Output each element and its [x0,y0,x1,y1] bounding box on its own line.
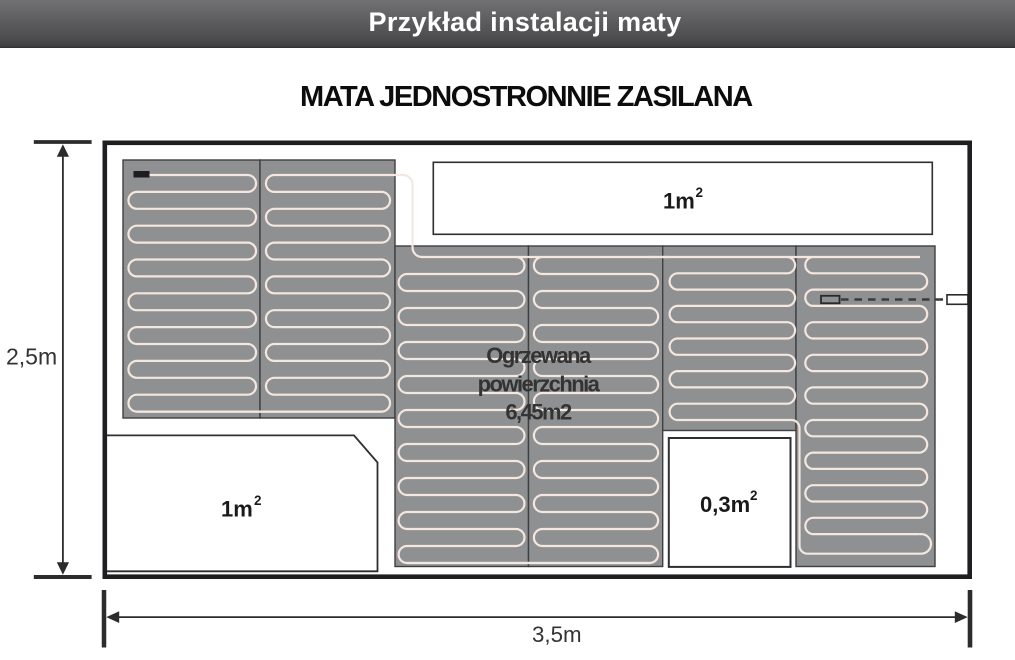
svg-text:2: 2 [254,493,262,508]
svg-text:2: 2 [750,488,758,503]
svg-text:6,45m2: 6,45m2 [505,400,572,425]
svg-text:1m: 1m [663,189,695,214]
svg-text:3,5m: 3,5m [532,622,582,647]
svg-text:Ogrzewana: Ogrzewana [486,343,592,368]
svg-text:2,5m: 2,5m [6,344,57,370]
svg-text:0,3m: 0,3m [700,492,750,517]
svg-text:1m: 1m [221,497,253,522]
svg-text:2: 2 [696,185,704,200]
svg-text:powierzchnia: powierzchnia [478,371,601,396]
